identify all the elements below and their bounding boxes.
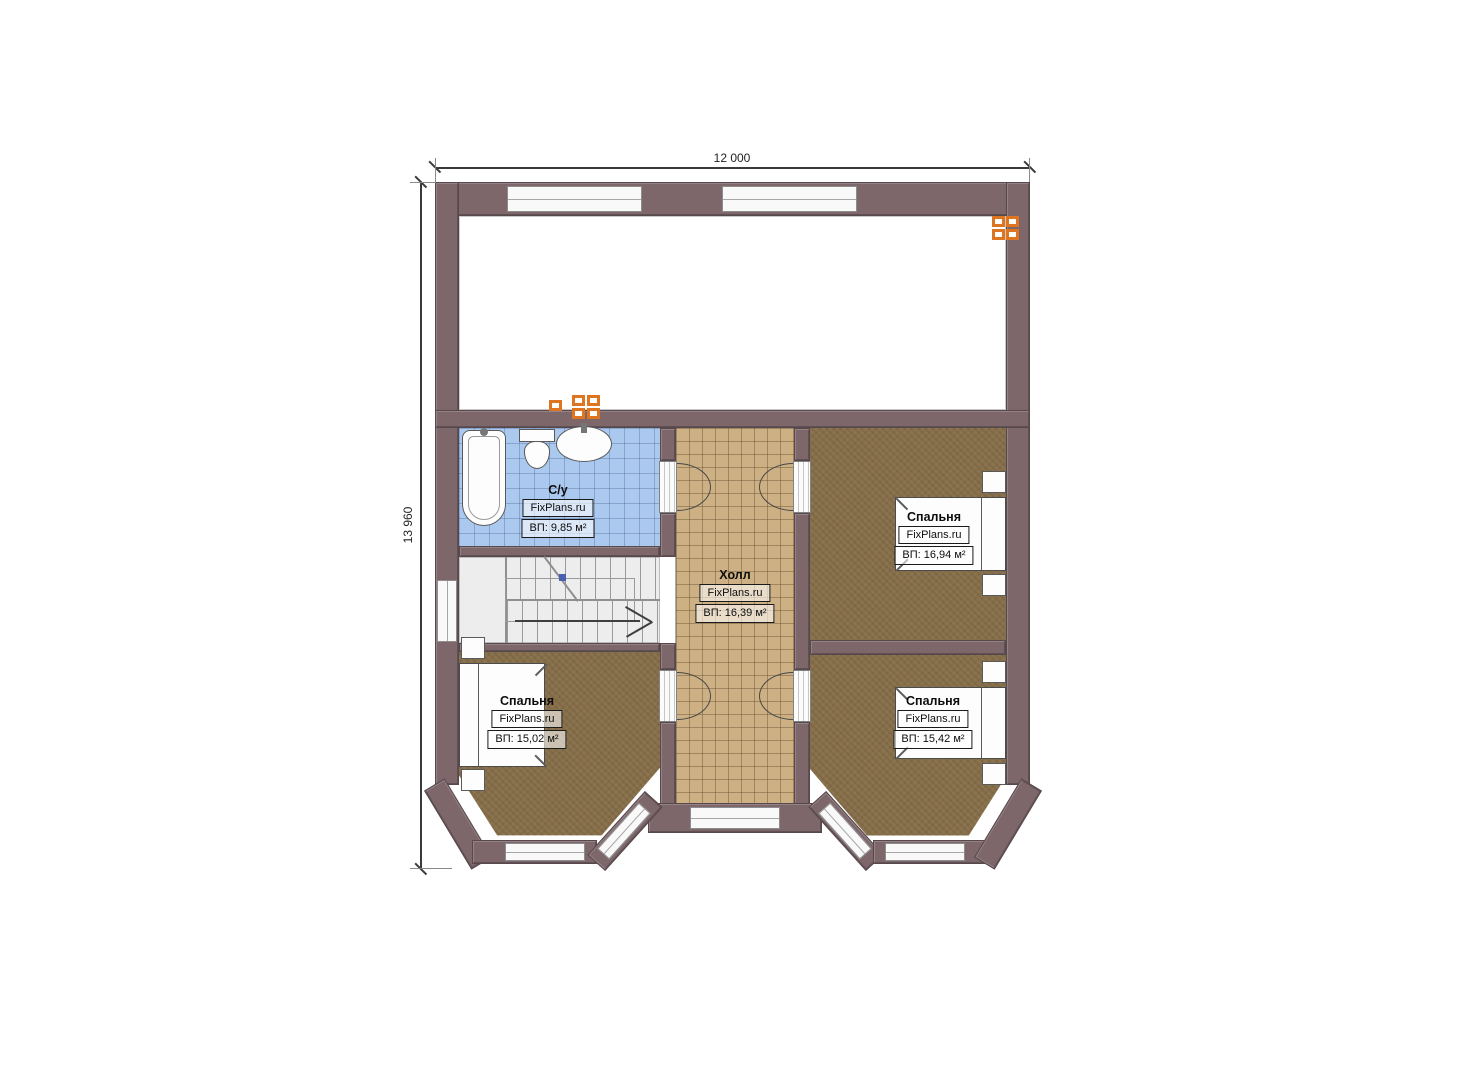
- nightstand: [982, 471, 1006, 493]
- room-area: ВП: 16,39 м²: [695, 604, 774, 622]
- room-name: Спальня: [907, 510, 961, 524]
- vent-icon: [587, 395, 600, 406]
- door-bedroom-top-right: [793, 461, 811, 513]
- sink: [556, 426, 612, 462]
- room-area: ВП: 15,42 м²: [893, 730, 972, 748]
- pillow-line: [981, 498, 982, 570]
- wall-hall-west: [660, 643, 676, 670]
- stairs-hall-opening: [660, 557, 676, 643]
- wall-bathroom-south: [459, 546, 660, 557]
- wall-stairs-south: [459, 643, 660, 652]
- door-bedroom-bottom-right: [793, 670, 811, 722]
- wall-bedrooms-divider: [810, 640, 1006, 655]
- room-label-bedroom-bottom-right: Спальня FixPlans.ru ВП: 15,42 м²: [893, 694, 972, 749]
- extension-line: [435, 158, 436, 182]
- vent-icon: [992, 216, 1005, 227]
- room-area: ВП: 9,85 м²: [521, 519, 594, 537]
- floor-plan: 12 000 13 960: [0, 0, 1474, 1080]
- window-top-1: [507, 186, 642, 212]
- dimension-line-left: [420, 182, 422, 870]
- window-bay-right-south: [885, 843, 965, 861]
- dimension-width-label: 12 000: [714, 151, 751, 165]
- wall-hall-west: [660, 513, 676, 557]
- extension-line: [1029, 158, 1030, 182]
- window-bay-left-south: [505, 843, 585, 861]
- brand-watermark: FixPlans.ru: [699, 584, 770, 602]
- nightstand: [982, 661, 1006, 683]
- pillow-line: [981, 688, 982, 758]
- upper-void-space: [459, 216, 1006, 410]
- wall-hall-east: [794, 722, 810, 810]
- wall-left: [435, 182, 459, 785]
- nightstand: [982, 574, 1006, 596]
- wall-hall-east: [794, 428, 810, 461]
- room-label-bedroom-top-right: Спальня FixPlans.ru ВП: 16,94 м²: [894, 510, 973, 565]
- room-label-bathroom: С/у FixPlans.ru ВП: 9,85 м²: [521, 483, 594, 538]
- room-name: С/у: [548, 483, 567, 497]
- dimension-line-top: [435, 167, 1030, 169]
- stair-well-outline: [505, 578, 635, 622]
- room-area: ВП: 15,02 м²: [487, 730, 566, 748]
- room-label-hall: Холл FixPlans.ru ВП: 16,39 м²: [695, 568, 774, 623]
- stair-marker: [559, 574, 566, 581]
- wall-hall-east: [794, 513, 810, 670]
- room-name: Спальня: [500, 694, 554, 708]
- vent-icon: [992, 229, 1005, 240]
- extension-line: [410, 182, 436, 183]
- vent-icon: [587, 408, 600, 419]
- extension-line: [410, 868, 452, 869]
- room-name: Холл: [719, 568, 750, 582]
- wall-interior-horizontal: [435, 410, 1030, 428]
- wall-hall-west: [660, 722, 676, 810]
- dimension-height-label: 13 960: [401, 507, 415, 544]
- window-left-wall: [437, 580, 457, 642]
- pillow-line: [478, 664, 479, 766]
- brand-watermark: FixPlans.ru: [897, 710, 968, 728]
- vent-icon: [1006, 229, 1019, 240]
- stair-direction-arrow: [515, 620, 640, 622]
- wall-hall-west: [660, 428, 676, 461]
- brand-watermark: FixPlans.ru: [898, 526, 969, 544]
- brand-watermark: FixPlans.ru: [491, 710, 562, 728]
- vent-icon: [1006, 216, 1019, 227]
- nightstand: [461, 637, 485, 659]
- wall-right: [1006, 182, 1030, 785]
- room-name: Спальня: [906, 694, 960, 708]
- window-top-2: [722, 186, 857, 212]
- room-label-bedroom-bottom-left: Спальня FixPlans.ru ВП: 15,02 м²: [487, 694, 566, 749]
- vent-icon: [572, 408, 585, 419]
- window-hall-south: [690, 807, 780, 829]
- door-bedroom-bottom-left: [659, 670, 677, 722]
- bathtub: [462, 430, 506, 526]
- nightstand: [461, 769, 485, 791]
- vent-icon: [572, 395, 585, 406]
- nightstand: [982, 763, 1006, 785]
- vent-icon: [549, 400, 562, 411]
- brand-watermark: FixPlans.ru: [522, 499, 593, 517]
- door-bathroom-hall: [659, 461, 677, 513]
- room-area: ВП: 16,94 м²: [894, 546, 973, 564]
